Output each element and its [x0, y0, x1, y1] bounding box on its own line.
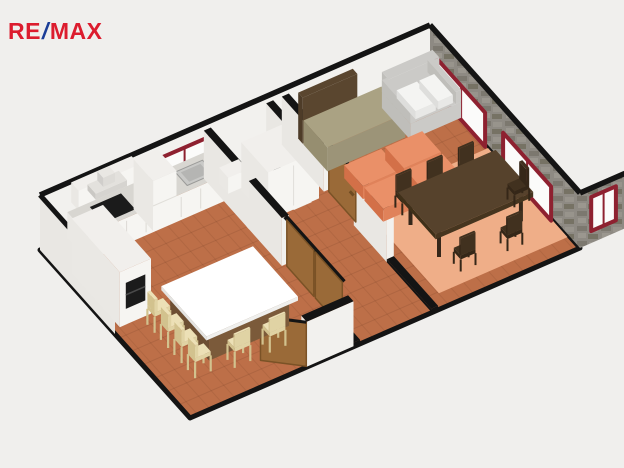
floorplan-render-page: RE/MAX: [0, 0, 624, 468]
floorplan-3d-view: [0, 0, 624, 468]
